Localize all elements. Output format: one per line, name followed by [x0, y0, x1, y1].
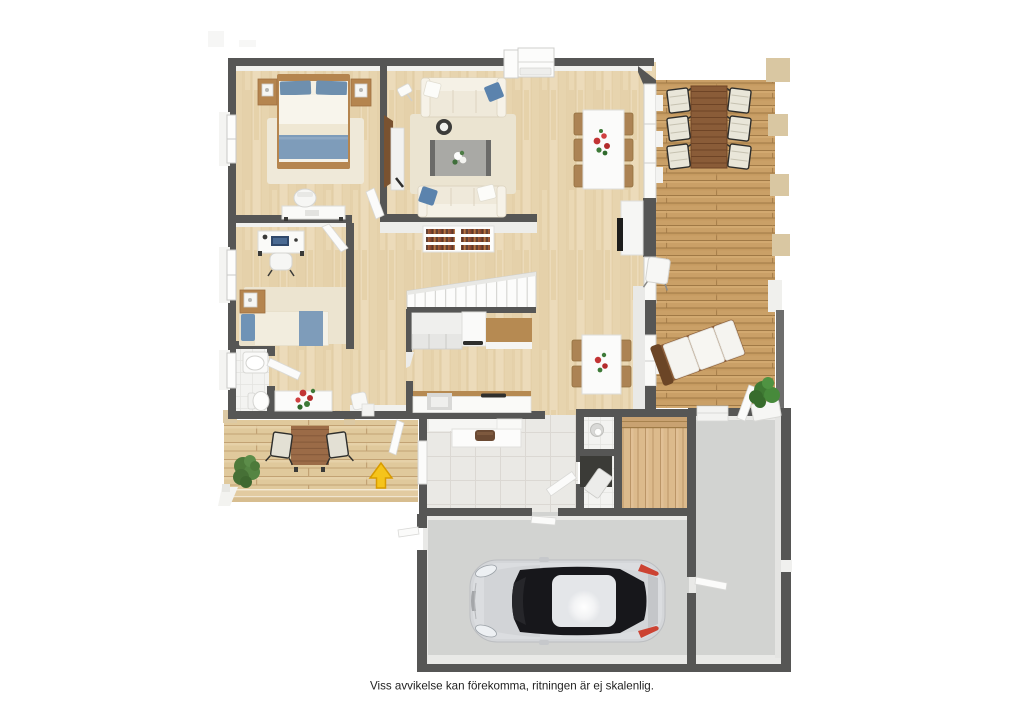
svg-text:Viss avvikelse kan förekomma,: Viss avvikelse kan förekomma, ritningen … [370, 680, 654, 693]
